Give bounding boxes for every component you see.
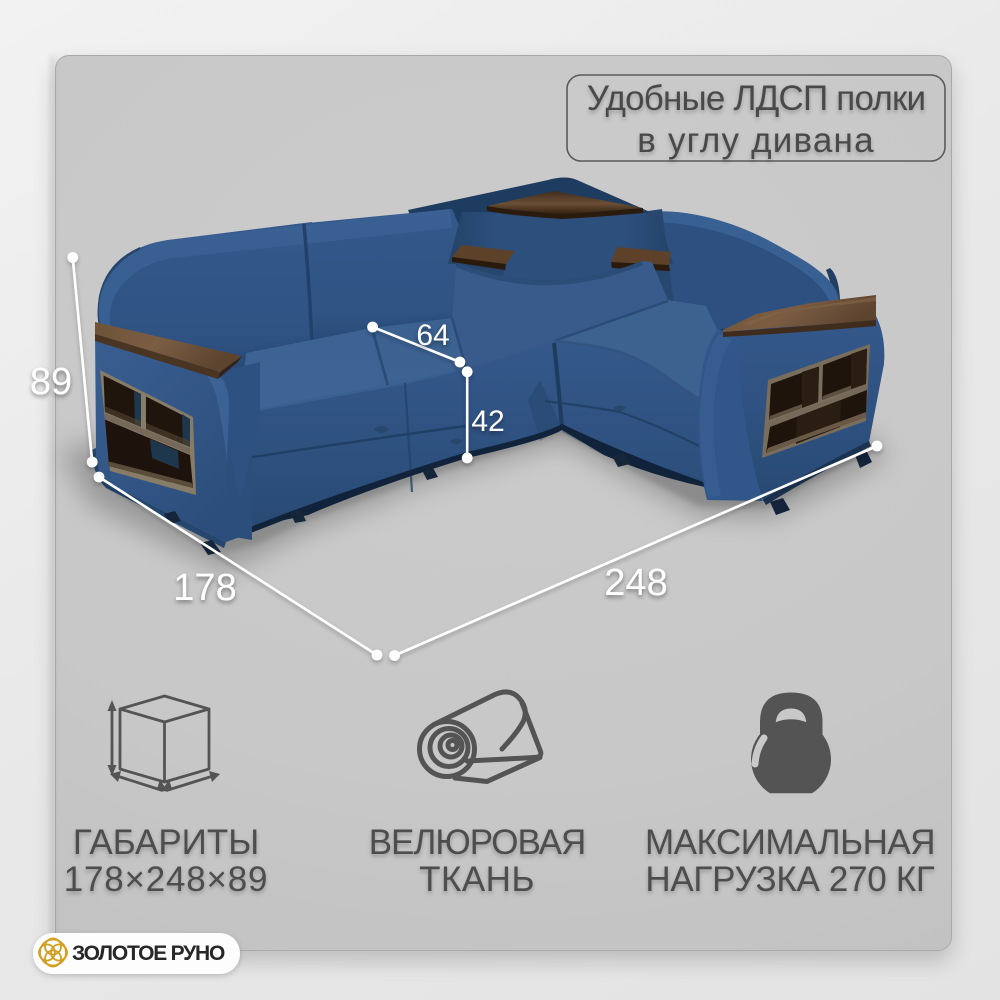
svg-text:в углу дивана: в углу дивана: [637, 121, 875, 160]
svg-text:НАГРУЗКА 270 КГ: НАГРУЗКА 270 КГ: [645, 860, 935, 899]
svg-text:МАКСИМАЛЬНАЯ: МАКСИМАЛЬНАЯ: [645, 823, 935, 862]
svg-text:64: 64: [416, 319, 449, 352]
svg-text:178: 178: [173, 567, 236, 609]
svg-text:248: 248: [604, 562, 667, 604]
svg-text:ВЕЛЮРОВАЯ: ВЕЛЮРОВАЯ: [369, 823, 586, 862]
svg-text:ГАБАРИТЫ: ГАБАРИТЫ: [73, 823, 259, 862]
svg-text:ТКАНЬ: ТКАНЬ: [419, 860, 535, 899]
svg-text:ЗОЛОТОЕ РУНО: ЗОЛОТОЕ РУНО: [72, 942, 225, 965]
svg-text:178×248×89: 178×248×89: [64, 860, 269, 899]
svg-text:42: 42: [471, 405, 504, 438]
svg-text:Удобные ЛДСП полки: Удобные ЛДСП полки: [587, 79, 925, 118]
svg-text:89: 89: [30, 361, 72, 403]
